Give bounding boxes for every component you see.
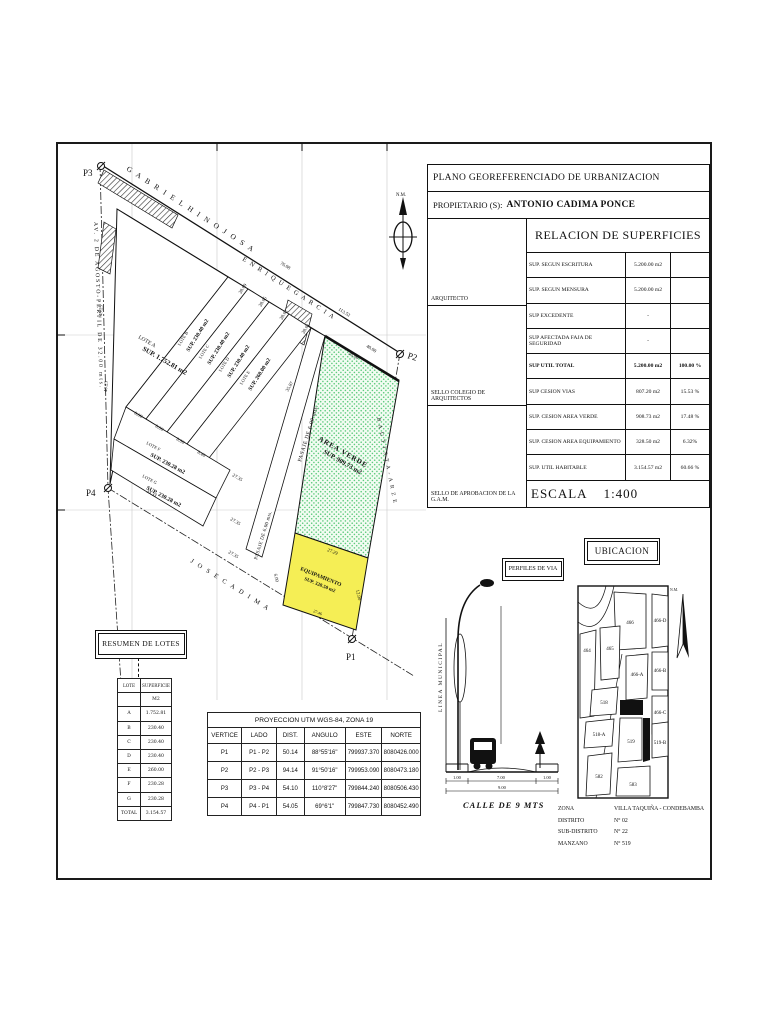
svg-text:464: 464 — [583, 649, 591, 654]
svg-text:518-A: 518-A — [593, 733, 606, 738]
sup-row: SUP EXCEDENTE - — [527, 304, 709, 329]
marker-p3-label: P3 — [83, 168, 93, 178]
table-row: C230.40 — [118, 735, 172, 749]
escala-row: ESCALA 1:400 — [527, 481, 709, 507]
table-row: M2 — [118, 693, 172, 707]
svg-text:519-B: 519-B — [654, 741, 667, 746]
dim-jose-gap: 6.00 — [272, 573, 279, 583]
table-row: D230.40 — [118, 749, 172, 763]
utm-title-row: PROYECCION UTM WGS-84, ZONA 19 — [208, 713, 421, 728]
sup-row: SUP AFECTADA FAJA DE SEGURIDAD - — [527, 329, 709, 354]
svg-text:583: 583 — [629, 783, 637, 788]
table-row: E260.00 — [118, 764, 172, 778]
utm-row: P2P2 - P394.1491°50'16"799953.0908080473… — [208, 762, 421, 780]
sello-gam-cell: SELLO DE APROBACION DE LA G.A.M. — [428, 406, 526, 506]
sup-row: SUP. SEGUN ESCRITURA 5.200.00 m2 — [527, 253, 709, 278]
relacion-title: RELACION DE SUPERFICIES — [527, 219, 709, 253]
ubicacion-title: UBICACION — [587, 541, 658, 561]
sup-row: SUP CESION VIAS 807.20 m2 15.53 % — [527, 379, 709, 404]
sheet-title: PLANO GEOREFERENCIADO DE URBANIZACION — [428, 165, 709, 192]
calle-label: CALLE DE 9 MTS — [463, 800, 544, 810]
svg-text:518: 518 — [600, 701, 608, 706]
lamp-head — [480, 579, 494, 587]
info-row: MANZANO N° 519 — [558, 839, 710, 851]
svg-text:465: 465 — [606, 647, 614, 652]
utm-row: P4P4 - P154.0569°6'1"799847.7308080452.4… — [208, 798, 421, 816]
dim-g-bottom: 27.35 — [227, 550, 239, 560]
svg-text:7.00: 7.00 — [497, 775, 506, 780]
svg-text:9.00: 9.00 — [498, 785, 507, 790]
svg-text:466-A: 466-A — [631, 673, 644, 678]
map-north-label: N.M. — [670, 588, 678, 592]
owner-value: ANTONIO CADIMA PONCE — [506, 200, 635, 210]
svg-text:582: 582 — [595, 775, 603, 780]
dim-g-top: 27.35 — [229, 517, 241, 527]
utm-table: PROYECCION UTM WGS-84, ZONA 19 VERTICE L… — [207, 712, 421, 816]
plan-sheet-page: P3 P2 P1 P4 G A B R I E L H I N O J O S … — [0, 0, 768, 1024]
signature-column: ARQUITECTO SELLO COLEGIO DE ARQUITECTOS … — [428, 219, 527, 507]
resumen-table: LOTESUPERFICIE M2 A1.752.81 B230.40 C230… — [117, 678, 172, 821]
sup-row-total: SUP UTIL TOTAL 5.200.00 m2 100.00 % — [527, 354, 709, 379]
info-row: SUB-DISTRITO N° 22 — [558, 827, 710, 839]
table-row: A1.752.81 — [118, 707, 172, 721]
site-plan-drawing: P3 P2 P1 P4 G A B R I E L H I N O J O S … — [56, 142, 428, 702]
arquitecto-cell: ARQUITECTO — [428, 219, 526, 306]
ubicacion-title-box: UBICACION — [584, 538, 660, 565]
resumen-title: RESUMEN DE LOTES — [98, 633, 185, 655]
utm-row: P1P1 - P250.1488°55'16"799937.3708080426… — [208, 744, 421, 762]
table-row: F230.28 — [118, 778, 172, 792]
dim-f-top: 27.35 — [231, 473, 243, 483]
north-label: N.M. — [396, 193, 406, 198]
street-jose-cadima: J O S E C A D I M A — [189, 558, 271, 613]
utm-header-row: VERTICE LADO DIST. ANGULO ESTE NORTE — [208, 728, 421, 744]
title-block: PLANO GEOREFERENCIADO DE URBANIZACION PR… — [427, 164, 710, 508]
tree-crown — [454, 634, 466, 702]
escala-label: ESCALA — [531, 486, 588, 502]
svg-text:466: 466 — [626, 621, 634, 626]
table-row: B230.40 — [118, 721, 172, 735]
owner-row: PROPIETARIO (S): ANTONIO CADIMA PONCE — [428, 192, 709, 219]
svg-text:466-B: 466-B — [654, 669, 667, 674]
svg-text:1.00: 1.00 — [543, 775, 552, 780]
location-info: ZONA VILLA TAQUIÑA - CONDEBAMBA DISTRITO… — [558, 804, 710, 850]
sup-row: SUP. UTIL HABITABLE 3.154.57 m2 60.66 % — [527, 455, 709, 480]
location-map: 466 466-D 464 465 466-A 466-B 466-C 518 … — [576, 584, 692, 802]
dim-street-seg: 76.08 — [279, 261, 291, 271]
map-north-arrow — [677, 594, 689, 658]
road-section — [446, 764, 558, 772]
table-row: G230.28 — [118, 792, 172, 806]
street-profile-drawing: LINEA MUNICIPAL 1.00 7.00 1.00 9.00 CALL… — [432, 552, 568, 818]
north-compass-icon — [389, 197, 417, 270]
marker-p2-label: P2 — [406, 350, 418, 362]
dim-west2: 40.23 — [104, 380, 110, 392]
sup-row: SUP. CESION AREA VERDE 908.73 m2 17.48 % — [527, 405, 709, 430]
svg-text:1.00: 1.00 — [453, 775, 462, 780]
dim-west1: 49.25 — [99, 304, 105, 316]
small-tree-symbol — [535, 731, 545, 768]
svg-text:466-D: 466-D — [654, 619, 667, 624]
car-silhouette — [470, 738, 496, 770]
linea-municipal-label: LINEA MUNICIPAL — [438, 642, 444, 712]
svg-text:519: 519 — [627, 740, 635, 745]
table-row: LOTESUPERFICIE — [118, 679, 172, 693]
resumen-title-box: RESUMEN DE LOTES — [95, 630, 187, 659]
info-row: ZONA VILLA TAQUIÑA - CONDEBAMBA — [558, 804, 710, 816]
resumen-leader-line — [138, 658, 139, 677]
subject-block-marker — [620, 700, 643, 715]
utm-row: P3P3 - P454.10110°8'27"799844.2408080506… — [208, 780, 421, 798]
owner-label: PROPIETARIO (S): — [433, 200, 502, 210]
marker-p1-label: P1 — [346, 652, 356, 662]
dim-street-seg2: 40.00 — [365, 344, 377, 354]
svg-text:466-C: 466-C — [654, 711, 667, 716]
sup-row: SUP. CESION AREA EQUIPAMIENTO 328.50 m2 … — [527, 430, 709, 455]
superficies-table: RELACION DE SUPERFICIES SUP. SEGUN ESCRI… — [527, 219, 709, 507]
marker-p4-label: P4 — [86, 488, 96, 498]
info-row: DISTRITO N° 02 — [558, 816, 710, 828]
sello-colegio-cell: SELLO COLEGIO DE ARQUITECTOS — [428, 306, 526, 406]
table-row-total: TOTAL3.154.57 — [118, 806, 172, 820]
escala-value: 1:400 — [604, 486, 639, 502]
sup-row: SUP. SEGUN MENSURA 5.200.00 m2 — [527, 278, 709, 303]
